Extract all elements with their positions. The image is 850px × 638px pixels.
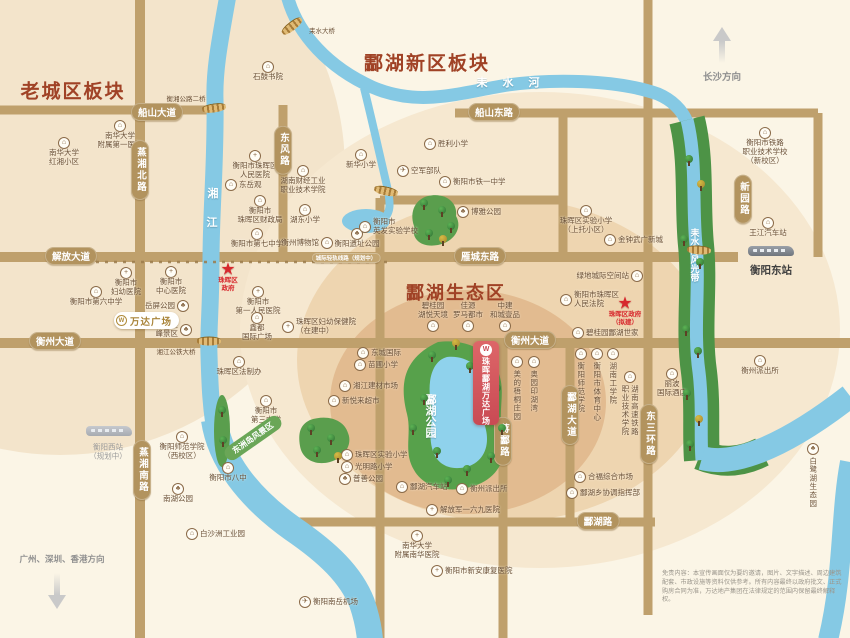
project-badge: W 珠晖酃湖万达广场 — [473, 341, 499, 425]
bridge-icon — [201, 102, 226, 114]
map-text: 衡湘公路二桥 — [167, 93, 206, 103]
tree-icon — [447, 222, 455, 230]
road-label: 船山东路 — [468, 103, 520, 121]
poi-marker: ⌂南华大学红湘小区 — [4, 137, 124, 167]
government-label: 珠晖区政府（拟建） — [609, 311, 642, 327]
poi-label: 白鹭湖生态园 — [808, 457, 817, 508]
map-text: 湘江公铁大桥 — [157, 346, 196, 356]
poi-label: 南华大学红湘小区 — [49, 149, 79, 167]
poi-label: 衡阳市英发实验学校 — [373, 218, 418, 236]
disclaimer-text: 免责内容：本宣传画面仅为要约邀请，图片、文字描述、周边建筑配套、市政设施等资料仅… — [662, 570, 844, 605]
district-title: 老城区板块 — [20, 77, 125, 104]
tree-icon — [307, 424, 315, 432]
building-icon: ⌂ — [572, 327, 584, 339]
tree-icon — [686, 440, 694, 448]
tree-icon — [438, 206, 446, 214]
road-label: 酃湖路 — [577, 512, 620, 530]
poi-marker: ⌂衡阳市铁一中学 — [439, 176, 506, 188]
poi-label: 衡阳市铁路职业技术学校（新校区） — [743, 139, 788, 166]
poi-label: 衡州派出所 — [741, 367, 779, 376]
poi-marker: +解放军一六九医院 — [426, 504, 500, 516]
poi-marker: ⌂珠晖区实验小学（上托小区） — [526, 205, 646, 235]
building-icon: ⌂ — [528, 356, 540, 368]
road-label: 东三环路 — [640, 404, 658, 464]
tree-icon — [695, 415, 703, 423]
poi-marker: ⌂衡阳市八中 — [168, 462, 288, 483]
park-icon: ♣ — [177, 300, 189, 312]
tree-icon — [487, 452, 495, 460]
tree-icon — [697, 180, 705, 188]
district-title: 酃湖新区板块 — [364, 49, 490, 76]
bridge-icon — [373, 184, 398, 198]
poi-label: 合福综合市场 — [588, 473, 633, 482]
road-label: 雁城东路 — [454, 247, 506, 265]
tree-icon — [694, 347, 702, 355]
poi-label: 新华小学 — [346, 161, 376, 170]
direction-arrow — [713, 27, 731, 63]
tree-icon — [218, 406, 226, 414]
tree-icon — [425, 229, 433, 237]
poi-label: 博雅公园 — [471, 208, 501, 217]
poi-marker: ⌂珠晖区法制办 — [179, 356, 299, 377]
park-icon: ♣ — [180, 324, 192, 336]
poi-label: 珠晖区法制办 — [217, 368, 262, 377]
poi-marker: ⌂石鼓书院 — [208, 61, 328, 82]
poi-marker: ⌂衡阳市珠晖区人民法院 — [560, 291, 619, 309]
market-icon: ⌂ — [328, 395, 340, 407]
school-icon: ⌂ — [424, 138, 436, 150]
poi-label: 南华大学附属南华医院 — [395, 542, 440, 560]
building-icon: ⌂ — [631, 270, 643, 282]
tree-icon — [452, 339, 460, 347]
tree-icon — [409, 424, 417, 432]
poi-label: 碧桂园酃湖世家 — [586, 329, 639, 338]
market-icon: ⌂ — [339, 380, 351, 392]
building-icon: ⌂ — [357, 347, 369, 359]
poi-marker: ⌂衡阳市铁路职业技术学校（新校区） — [705, 127, 825, 166]
school-icon: ⌂ — [341, 449, 353, 461]
poi-label: 酃湖乡协调指挥部 — [580, 489, 640, 498]
poi-marker: ♣普善公园 — [339, 473, 383, 485]
poi-marker: ✈衡阳南岳机场 — [299, 596, 358, 608]
poi-label: 衡阳师范学院（西校区） — [160, 443, 205, 461]
building-icon: ⌂ — [456, 483, 468, 495]
tree-icon — [498, 424, 506, 432]
poi-marker: ⌂衡阳市第六中学 — [36, 286, 156, 307]
poi-label: 衡阳市八中 — [209, 474, 247, 483]
bridge-icon — [197, 337, 221, 346]
map-text: 衡阳东站 — [750, 263, 792, 278]
poi-label: 东城国际 — [371, 349, 401, 358]
road-label: 蒸湘南路 — [133, 440, 151, 500]
tree-icon — [428, 351, 436, 359]
tree-icon — [420, 199, 428, 207]
map-text: 湘 — [208, 185, 219, 201]
map: ⌂石鼓书院⌂南华大学附属第一医院⌂南华大学红湘小区+衡阳市珠晖区人民医院⌂东岳观… — [0, 0, 850, 638]
building-icon: ⌂ — [604, 234, 616, 246]
poi-label: 解放军一六九医院 — [440, 506, 500, 515]
map-text: 耒水大桥 — [309, 25, 335, 35]
map-text: 广州、深圳、香港方向 — [19, 553, 104, 565]
building-icon: ⌂ — [225, 179, 237, 191]
hospital-icon: + — [426, 504, 438, 516]
road-label: 酃湖大道 — [561, 385, 579, 445]
poi-label: 衡阳市铁一中学 — [453, 178, 506, 187]
wanda-logo-icon: W — [116, 315, 127, 326]
poi-marker: ⌂衡州派出所 — [456, 483, 508, 495]
building-icon: ⌂ — [186, 528, 198, 540]
poi-label: 绿地城际空间站 — [577, 272, 630, 281]
tree-icon — [439, 235, 447, 243]
poi-label: 丽波国际酒店 — [657, 380, 687, 398]
poi-marker: ⌂合福综合市场 — [574, 471, 633, 483]
road-label: 蒸湘北路 — [131, 140, 149, 200]
map-text: 长沙方向 — [703, 69, 741, 83]
building-icon: ⌂ — [499, 320, 511, 332]
school-icon: ⌂ — [341, 461, 353, 473]
tree-icon — [444, 476, 452, 484]
poi-marker: +南华大学附属南华医院 — [357, 530, 477, 560]
poi-label: 奥园印湖湾 — [529, 370, 538, 413]
school-icon: ⌂ — [359, 221, 371, 233]
badge-label: 万达广场 — [130, 314, 172, 328]
map-text: 耒 水 河 — [476, 74, 545, 90]
poi-label: 湖东小学 — [290, 216, 320, 225]
tree-icon — [680, 235, 688, 243]
tree-icon — [463, 465, 471, 473]
poi-label: 湖南财经工业职业技术学院 — [281, 177, 326, 195]
poi-label: 空军部队 — [411, 167, 441, 176]
poi-label: 新悦来超市 — [342, 397, 380, 406]
tree-icon — [682, 325, 690, 333]
poi-label: 石鼓书院 — [253, 73, 283, 82]
poi-label: 苗圃小学 — [368, 361, 398, 370]
map-text: 江 — [207, 214, 218, 230]
poi-label: 珠晖区实验小学（上托小区） — [560, 217, 613, 235]
park-icon: ♣ — [457, 206, 469, 218]
poi-marker: ⌂奥园印湖湾 — [504, 356, 564, 413]
road-label: 解放大道 — [45, 247, 97, 265]
poi-label: 衡州派出所 — [470, 485, 508, 494]
wanda-logo-icon: W — [480, 344, 492, 356]
road-label: 衡州大道 — [504, 331, 556, 349]
park-icon: ♣ — [339, 473, 351, 485]
tree-icon — [313, 446, 321, 454]
poi-label: 鑫都国际广场 — [242, 324, 272, 342]
poi-marker: ⌂金钟武广新城 — [604, 234, 663, 246]
poi-marker: ⌂酃湖乡协调指挥部 — [566, 487, 640, 499]
building-icon: ⌂ — [396, 481, 408, 493]
badge-label: 珠晖酃湖万达广场 — [481, 357, 492, 425]
road-label: 城际轻轨线路（规划中） — [312, 253, 381, 263]
map-text: （规划中） — [89, 451, 127, 462]
poi-label: 普善公园 — [353, 475, 383, 484]
poi-marker: 绿地城际空间站⌂ — [577, 270, 644, 282]
tree-icon — [683, 389, 691, 397]
poi-marker: ⌂王江汽车站 — [708, 217, 828, 238]
poi-label: 酃湖汽车站 — [410, 483, 448, 492]
school-icon: ⌂ — [354, 359, 366, 371]
building-icon: ⌂ — [566, 487, 578, 499]
poi-label: 金钟武广新城 — [618, 236, 663, 245]
train-icon — [86, 426, 132, 436]
poi-label: 白沙洲工业园 — [200, 530, 245, 539]
tree-icon — [327, 434, 335, 442]
hospital-icon: + — [431, 565, 443, 577]
tree-icon — [685, 155, 693, 163]
poi-label: 南湖公园 — [163, 495, 193, 504]
poi-label: 胜利小学 — [438, 140, 468, 149]
poi-marker: ⌂苗圃小学 — [354, 359, 398, 371]
poi-marker: ⌂酃湖汽车站 — [396, 481, 448, 493]
bridge-icon — [280, 15, 304, 37]
poi-marker: ♣白鹭湖生态园 — [783, 443, 843, 508]
star-icon: ★ — [220, 261, 235, 278]
poi-label: 衡阳市珠晖区人民法院 — [574, 291, 619, 309]
government-label: 珠晖区政府 — [218, 277, 238, 293]
poi-marker: +衡阳市新安康复医院 — [431, 565, 513, 577]
wanda-plaza-badge: W 万达广场 — [114, 312, 179, 329]
road-label: 新园路 — [734, 175, 752, 224]
poi-label: 珠晖区实验小学 — [355, 451, 408, 460]
district-title: 酃湖生态区 — [406, 279, 506, 305]
poi-marker: ⌂白沙洲工业园 — [186, 528, 245, 540]
tree-icon — [334, 452, 342, 460]
park-icon: ♣ — [807, 443, 819, 455]
road-label: 船山大道 — [131, 103, 183, 121]
tree-icon — [696, 258, 704, 266]
poi-marker: ⌂东城国际 — [357, 347, 401, 359]
poi-label: 衡阳市第六中学 — [70, 298, 123, 307]
poi-marker: ⌂衡阳市英发实验学校 — [359, 218, 418, 236]
plane-icon: ✈ — [299, 596, 311, 608]
poi-label: 衡阳南岳机场 — [313, 598, 358, 607]
road-label: 衡州大道 — [29, 332, 81, 350]
train-icon — [748, 246, 794, 256]
poi-marker: ⌂湖东小学 — [245, 204, 365, 225]
direction-arrow — [48, 573, 66, 609]
tree-icon — [433, 447, 441, 455]
poi-marker: ⌂湘江建材市场 — [339, 380, 398, 392]
poi-marker: ♣博雅公园 — [457, 206, 501, 218]
poi-label: 光明路小学 — [355, 463, 393, 472]
school-icon: ⌂ — [439, 176, 451, 188]
poi-marker: 中建和城壹品⌂ — [445, 302, 565, 332]
poi-marker: ⌂珠晖区实验小学 — [341, 449, 408, 461]
poi-label: 王江汽车站 — [749, 229, 787, 238]
tree-icon — [420, 394, 428, 402]
poi-marker: ✈空军部队 — [397, 165, 441, 177]
poi-label: 湘江建材市场 — [353, 382, 398, 391]
poi-marker: ⌂衡州派出所 — [700, 355, 820, 376]
star-icon: ★ — [617, 295, 632, 312]
school-icon: ⌂ — [607, 348, 619, 360]
poi-marker: ⌂碧桂园酃湖世家 — [572, 327, 639, 339]
poi-marker: ⌂光明路小学 — [341, 461, 393, 473]
poi-label: 衡阳遗址公园 — [335, 240, 380, 249]
poi-label: 衡阳市新安康复医院 — [445, 567, 513, 576]
poi-marker: ⌂胜利小学 — [424, 138, 468, 150]
poi-label: 衡阳市第七中学 — [231, 240, 284, 249]
tree-icon — [219, 436, 227, 444]
plane-icon: ✈ — [397, 165, 409, 177]
market-icon: ⌂ — [574, 471, 586, 483]
road-label: 东风路 — [274, 126, 292, 175]
poi-marker: ⌂新悦来超市 — [328, 395, 380, 407]
